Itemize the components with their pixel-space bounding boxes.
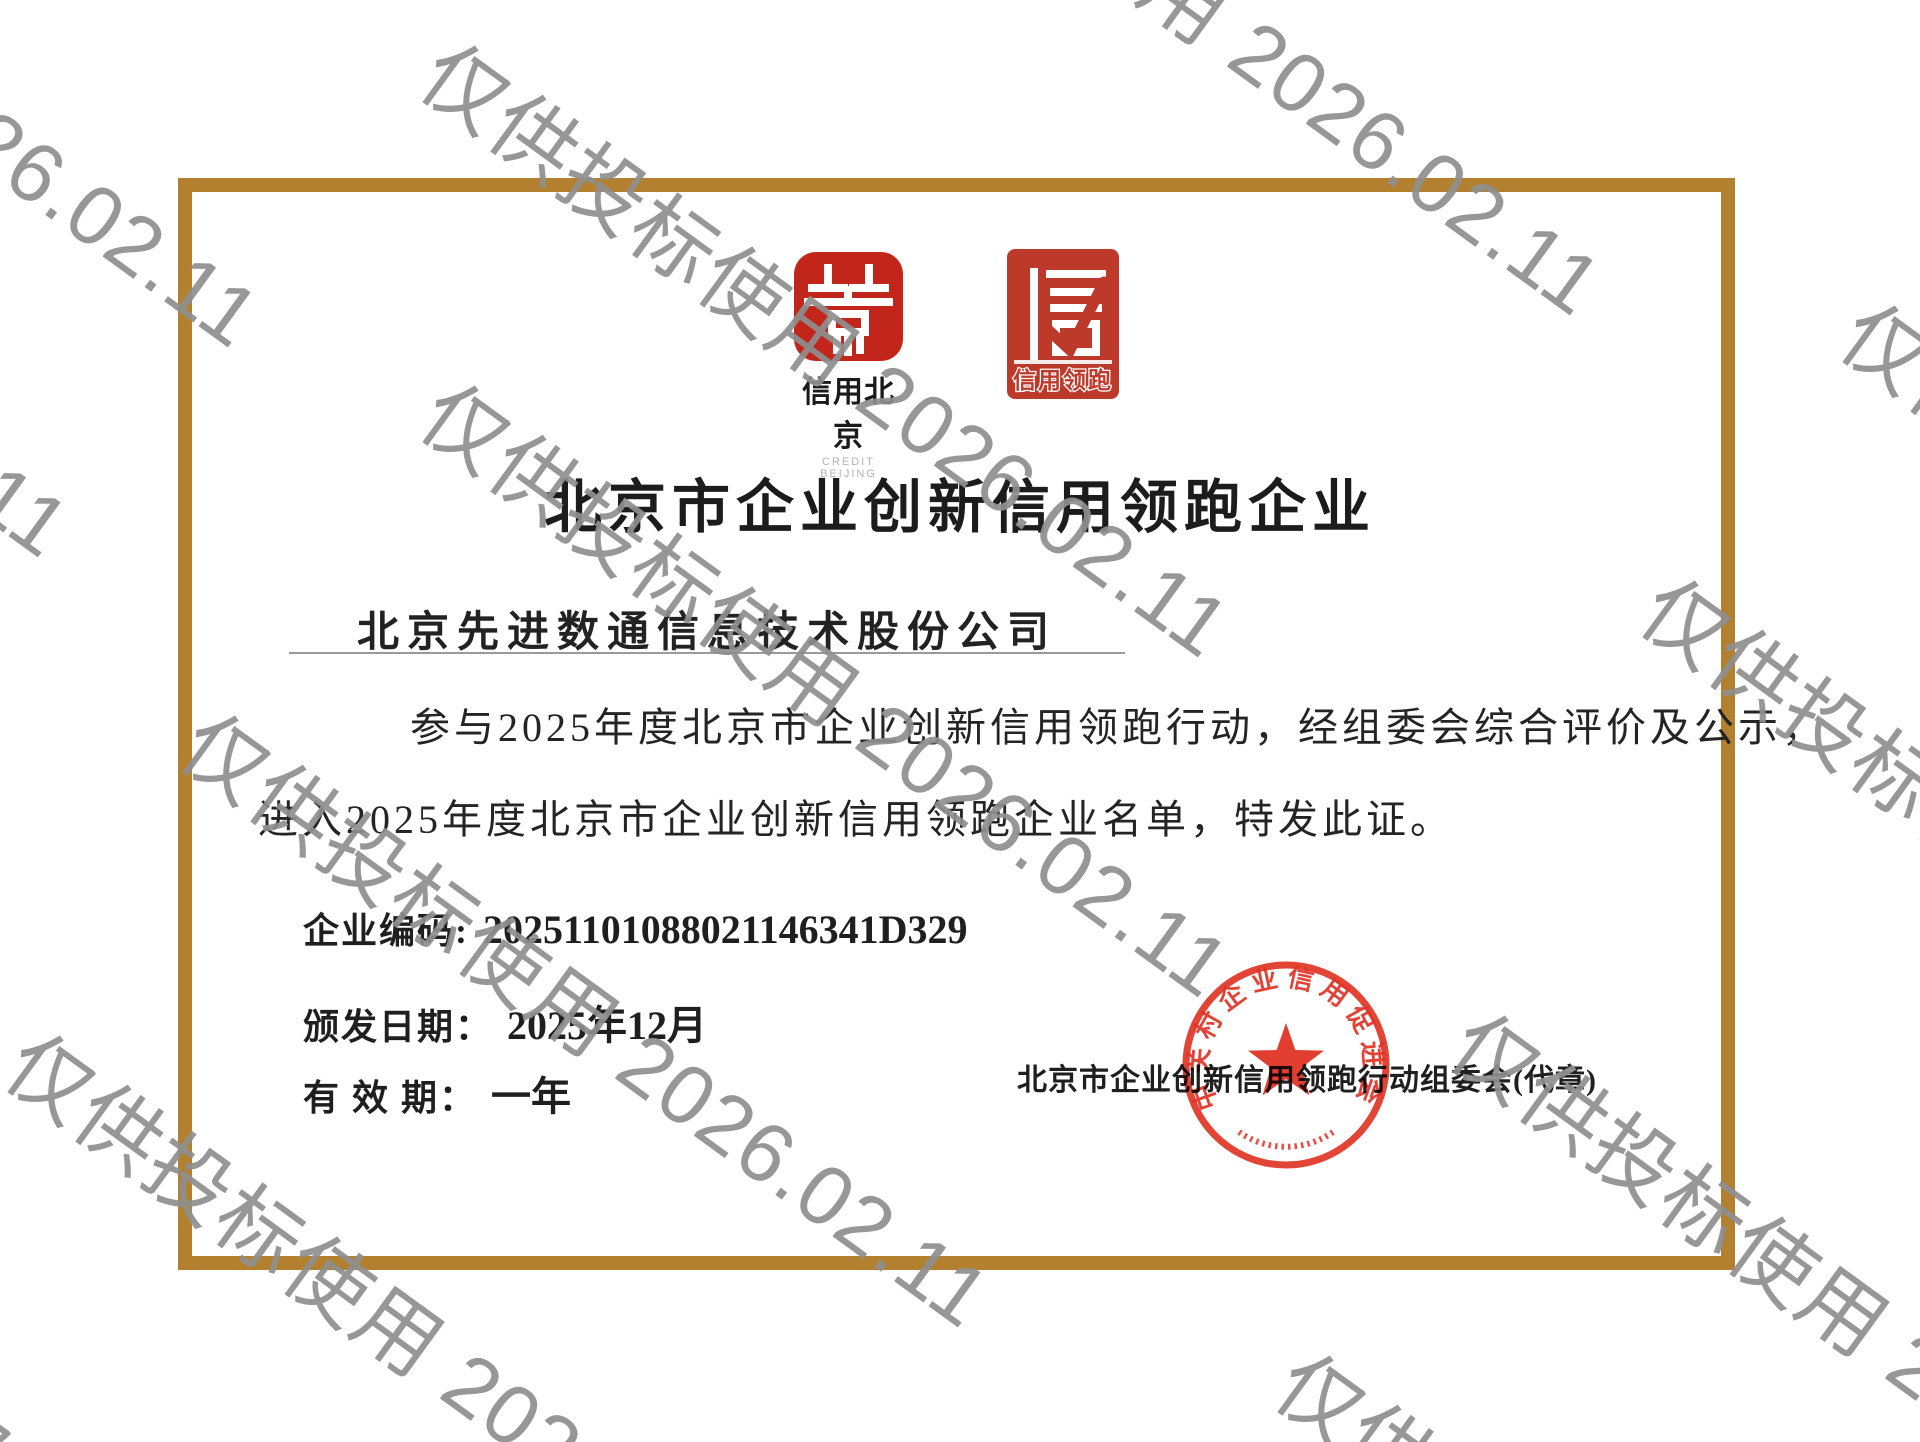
certificate-page: 信用北京 CREDIT BEIJING 信用领跑 北京市企业创新信用领跑企业 北… [0,0,1920,1442]
body-line-2: 进入2025年度北京市企业创新信用领跑企业名单，特发此证。 [258,787,1454,845]
credit-beijing-label: 信用北京 [792,367,905,455]
credit-beijing-emblem-icon [792,250,905,363]
validity-row: 有 效 期： 一年 [303,1064,571,1122]
watermark-text: 仅供投标使用 2026.02.11 [1254,1320,1920,1442]
enterprise-code-label: 企业编码: [303,911,469,951]
seal-serial-marks [1239,1132,1333,1147]
seal-star-icon [1248,1023,1324,1095]
company-underline [289,652,1125,654]
certificate-title: 北京市企业创新信用领跑企业 [0,460,1920,544]
issue-date-value: 2025年12月 [507,1003,707,1048]
watermark-text: 仅供投标使用 2026.02.11 [0,1360,759,1442]
official-seal-icon: 中关村企业信用促进会 [1166,945,1406,1185]
credit-leader-label: 信用领跑 [1013,367,1113,393]
company-name: 北京先进数通信息技术股份公司 [289,598,1125,659]
validity-label: 有 效 期： [303,1078,477,1118]
enterprise-code-value: 20251101088021146341D329 [483,907,967,952]
body-line-1: 参与2025年度北京市企业创新信用领跑行动，经组委会综合评价及公示， [410,695,1826,753]
credit-beijing-logo: 信用北京 CREDIT BEIJING [792,250,905,480]
credit-leader-logo-icon: 信用领跑 [1006,248,1120,400]
issue-date-row: 颁发日期： 2025年12月 [303,993,707,1051]
enterprise-code-row: 企业编码: 20251101088021146341D329 [303,902,967,954]
issue-date-label: 颁发日期： [303,1007,493,1047]
watermark-text: 仅供投标使用 2026.02.11 [1819,270,1920,941]
validity-value: 一年 [491,1074,571,1119]
